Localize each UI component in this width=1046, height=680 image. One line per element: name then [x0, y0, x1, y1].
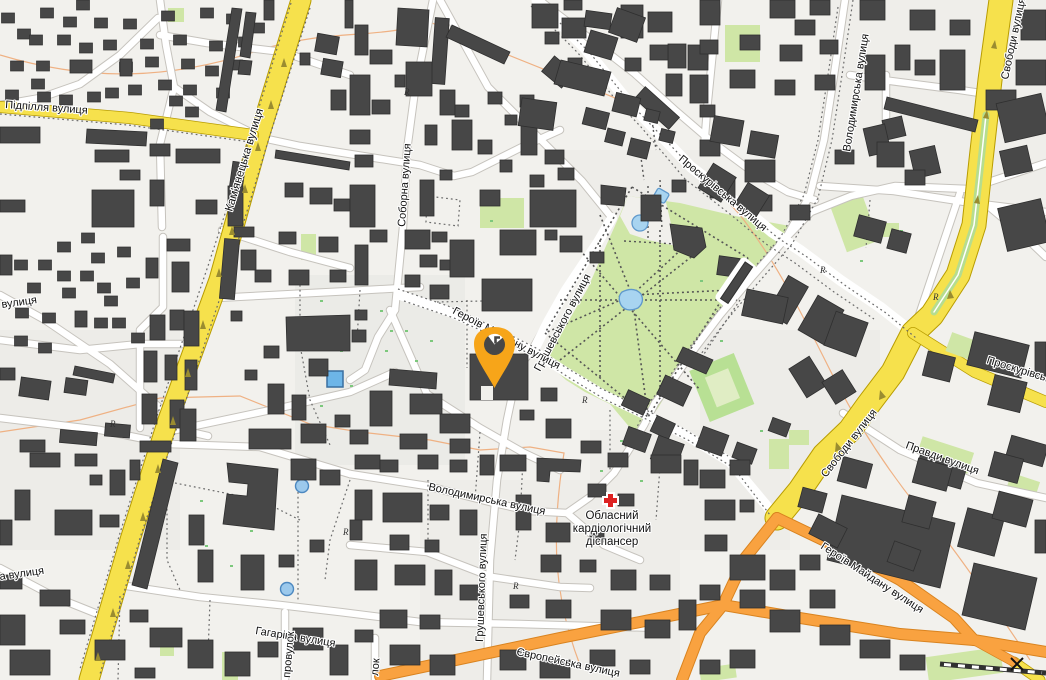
svg-text:R: R — [819, 265, 826, 275]
svg-text:R: R — [932, 292, 939, 302]
svg-text:діспансер: діспансер — [586, 536, 639, 548]
svg-text:лок: лок — [369, 658, 382, 677]
svg-text:кардіологічний: кардіологічний — [573, 523, 651, 535]
svg-text:R: R — [581, 395, 588, 405]
svg-text:R: R — [403, 87, 410, 97]
svg-text:Обласний: Обласний — [585, 510, 638, 522]
svg-text:R: R — [109, 419, 116, 429]
svg-text:R: R — [512, 581, 519, 591]
svg-text:R: R — [342, 527, 349, 537]
